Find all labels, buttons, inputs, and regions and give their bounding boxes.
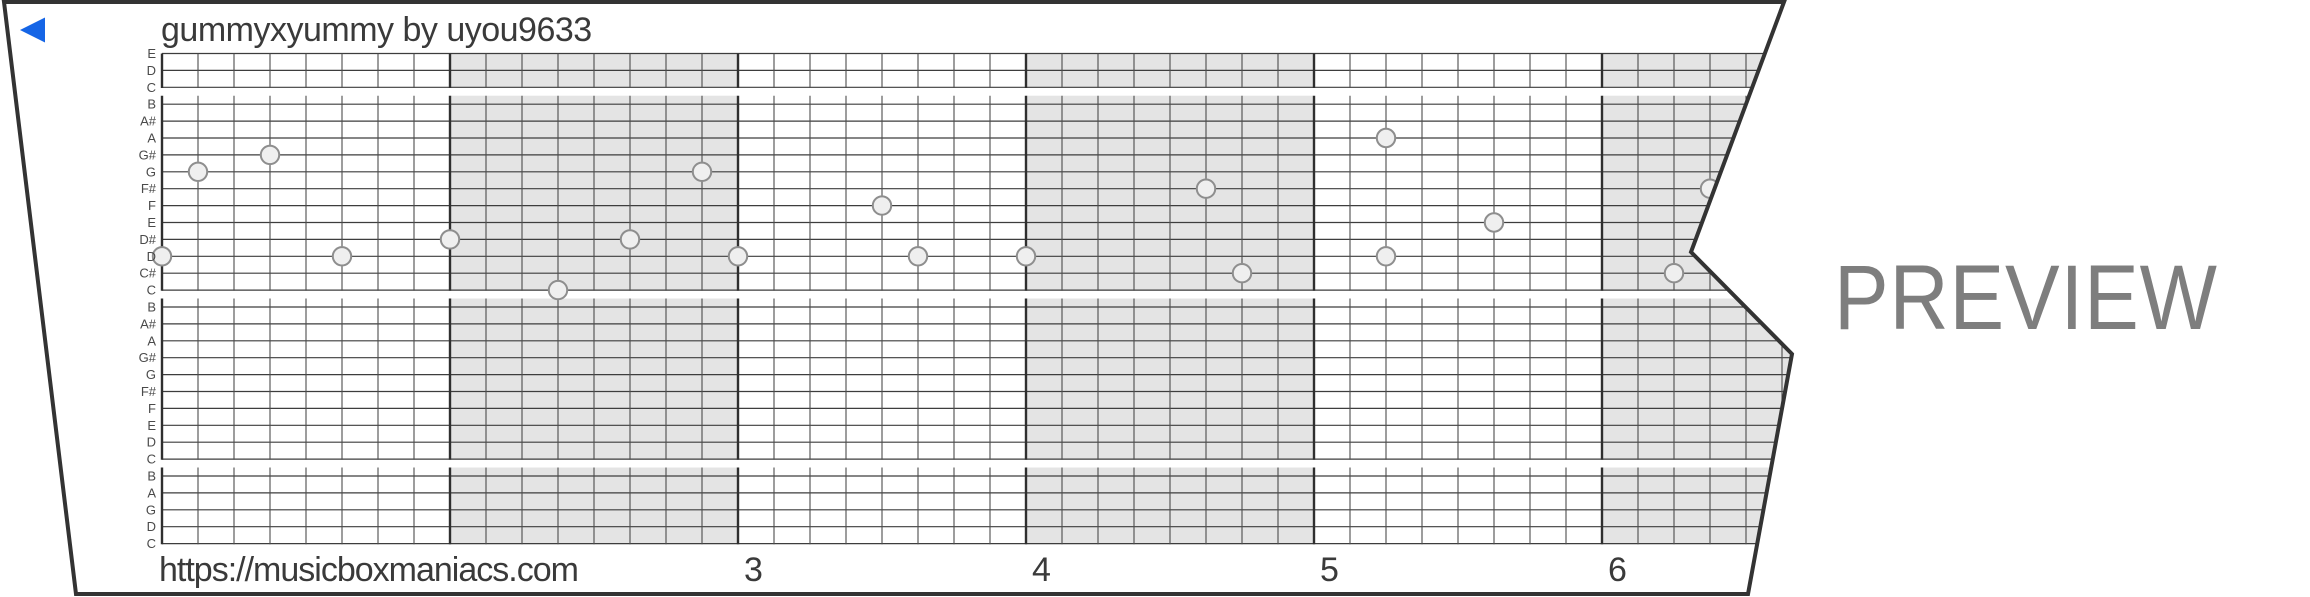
- pitch-label: D#: [139, 232, 156, 247]
- pitch-label: F: [148, 198, 156, 213]
- pitch-label: D: [147, 249, 156, 264]
- preview-watermark: PREVIEW: [1834, 246, 2218, 351]
- note-dot-F#5: [1197, 180, 1215, 198]
- note-grid: [153, 54, 1890, 545]
- note-dot-C#5: [1233, 264, 1251, 282]
- pitch-label: F#: [141, 181, 157, 196]
- pitch-label: D: [147, 519, 156, 534]
- pitch-label: F: [148, 401, 156, 416]
- note-dot-D#5: [621, 230, 639, 248]
- pitch-label: D: [147, 435, 156, 450]
- note-dot-D5: [1377, 247, 1395, 265]
- measure-number: 3: [744, 551, 763, 590]
- measure-number: 4: [1032, 551, 1051, 590]
- melody-title: gummyxyummy by uyou9633: [161, 11, 592, 50]
- pitch-label: C: [147, 452, 156, 467]
- pitch-label: F#: [141, 384, 157, 399]
- note-dot-C5: [549, 281, 567, 299]
- note-dot-D5: [729, 247, 747, 265]
- strip-outline: [4, 2, 1792, 594]
- pitch-label: C: [147, 536, 156, 551]
- pitch-label: C: [147, 80, 156, 95]
- note-dot-A5: [1377, 129, 1395, 147]
- note-dot-C#5: [1665, 264, 1683, 282]
- watermark-url: https://musicboxmaniacs.com: [159, 551, 578, 590]
- pitch-label: A#: [140, 316, 157, 331]
- pitch-label: G: [146, 502, 156, 517]
- pitch-label: B: [147, 300, 156, 315]
- pitch-label: E: [147, 418, 156, 433]
- back-arrow-button[interactable]: [0, 0, 60, 60]
- pitch-label: E: [147, 215, 156, 230]
- note-dot-D#5: [441, 230, 459, 248]
- pitch-label: C#: [139, 266, 156, 281]
- note-dot-D5: [333, 247, 351, 265]
- pitch-label: C: [147, 283, 156, 298]
- pitch-label: B: [147, 469, 156, 484]
- note-dot-D5: [1017, 247, 1035, 265]
- note-dot-E5: [1485, 213, 1503, 231]
- note-dot-G#5: [261, 146, 279, 164]
- pitch-label: G: [146, 367, 156, 382]
- pitch-label: G#: [139, 147, 157, 162]
- note-dot-F5: [873, 196, 891, 214]
- back-arrow-icon[interactable]: [20, 18, 45, 43]
- pitch-label: G#: [139, 350, 157, 365]
- note-dot-G5: [189, 163, 207, 181]
- pitch-label: G: [146, 164, 156, 179]
- measure-number: 5: [1320, 551, 1339, 590]
- pitch-label: E: [147, 46, 156, 61]
- pitch-label: B: [147, 97, 156, 112]
- pitch-label: D: [147, 63, 156, 78]
- note-dot-G5: [693, 163, 711, 181]
- pitch-label: A: [147, 333, 156, 348]
- music-box-preview: EDCBA#AG#GF#FED#DC#CBA#AG#GF#FEDCBAGDC g…: [0, 0, 2310, 597]
- measure-number: 6: [1608, 551, 1627, 590]
- pitch-label: A#: [140, 114, 157, 129]
- pitch-label: A: [147, 485, 156, 500]
- pitch-label: A: [147, 131, 156, 146]
- note-dot-D5: [909, 247, 927, 265]
